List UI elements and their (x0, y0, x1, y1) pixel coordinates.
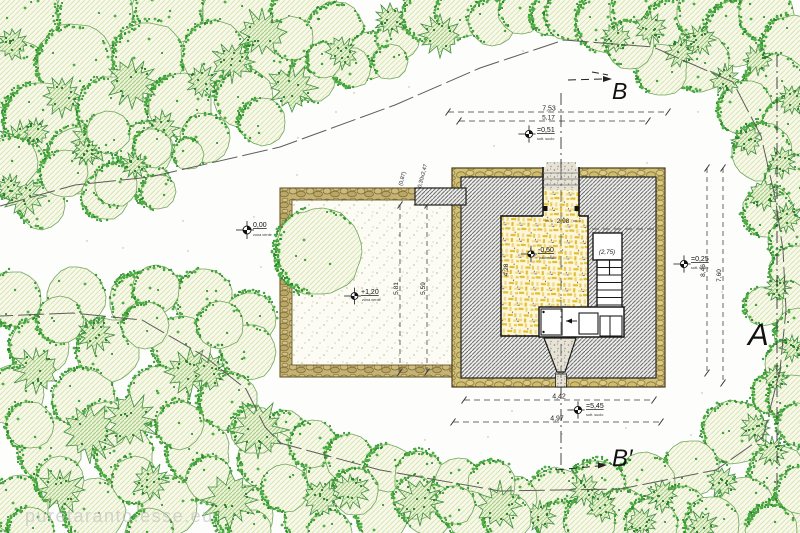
svg-text:B: B (612, 78, 627, 104)
svg-text:5,81: 5,81 (393, 282, 400, 295)
svg-text:=5,45: =5,45 (586, 403, 604, 410)
svg-text:sott. suolo: sott. suolo (537, 137, 554, 141)
svg-text:zona verde: zona verde (362, 298, 381, 302)
svg-text:=0,25: =0,25 (691, 256, 709, 263)
svg-text:0,00: 0,00 (253, 222, 267, 229)
svg-text:-0,50: -0,50 (538, 247, 554, 254)
svg-text:=0,51: =0,51 (537, 127, 555, 134)
svg-text:(2,75): (2,75) (599, 249, 615, 256)
svg-text:4,42: 4,42 (552, 394, 566, 401)
svg-text:zona verde: zona verde (253, 233, 272, 237)
svg-text:2,98: 2,98 (557, 218, 570, 225)
svg-text:puretaranto.esse.eu: puretaranto.esse.eu (25, 506, 214, 526)
svg-text:7,60: 7,60 (716, 269, 723, 282)
svg-text:4,28: 4,28 (503, 263, 510, 276)
svg-text:7,53: 7,53 (542, 106, 556, 113)
svg-text:A: A (746, 317, 769, 352)
svg-text:5,17: 5,17 (542, 115, 555, 122)
svg-text:8,46: 8,46 (700, 264, 707, 277)
svg-text:4,97: 4,97 (550, 416, 564, 423)
svg-text:5,59: 5,59 (420, 282, 427, 295)
svg-text:+1,20: +1,20 (361, 289, 379, 296)
svg-text:pavimento: pavimento (539, 256, 557, 260)
svg-text:sott. suolo: sott. suolo (586, 413, 603, 417)
svg-text:B′: B′ (612, 445, 634, 472)
